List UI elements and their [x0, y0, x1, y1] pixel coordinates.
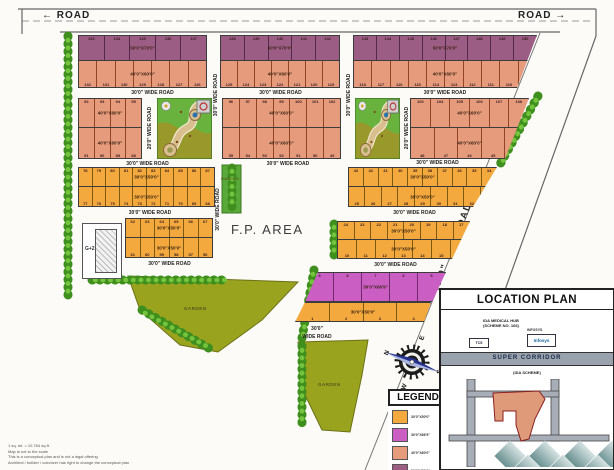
plot-row: 13213113012912812712640'0"X60'0": [78, 61, 207, 88]
plot-cell: 47: [435, 128, 459, 158]
plot-row: 13313413513613750'0"X70'0": [78, 35, 207, 61]
garden-label: GARDEN: [221, 177, 239, 181]
plot-cell: 3: [364, 303, 398, 321]
plot-cell: 94: [111, 99, 127, 127]
compass-e: E: [418, 334, 426, 341]
road-label: 30'0" WIDE ROAD: [380, 90, 510, 97]
plot-cell: 6: [390, 273, 418, 301]
arrow-left-icon: ←: [42, 10, 53, 21]
plot-cell: 91: [79, 128, 95, 158]
plot-cell: 20: [404, 222, 421, 239]
plot-cell: 80: [106, 168, 120, 186]
plot-number: 20: [404, 222, 420, 227]
plot-number: 129: [134, 82, 151, 87]
plot-cell: 85: [174, 168, 188, 186]
road-label: WIDE ROAD: [292, 334, 342, 341]
plot-cell: 119: [323, 61, 339, 87]
plot-number: 37: [438, 168, 452, 173]
plot-cell: 102: [324, 99, 340, 127]
plot-number: 29: [415, 201, 430, 206]
garden-label: GARDEN: [184, 306, 207, 311]
block-c: 14314414514614714814915050'0"X70'0"11811…: [353, 35, 537, 88]
plot-number: 18: [437, 222, 453, 227]
block-k: 9876530'0"X66'9": [305, 272, 446, 302]
plot-cell: 126: [189, 61, 206, 87]
plot-number: 57: [184, 252, 198, 257]
plot-number: 23: [355, 222, 371, 227]
plot-number: 136: [156, 36, 181, 41]
plot-number: 10: [338, 253, 356, 258]
plot-cell: 83: [147, 168, 161, 186]
top-road-label-right: ROAD →: [518, 10, 566, 21]
plot-number: 1: [296, 316, 329, 321]
g2-building-compound: G+2: [82, 223, 122, 279]
compass-n: N: [383, 349, 391, 356]
plot-cell: 128: [152, 61, 170, 87]
plot-cell: 26: [365, 187, 381, 206]
plot-cell: 111: [482, 61, 500, 87]
plot-cell: 71: [161, 187, 175, 206]
plot-number: 38: [423, 168, 437, 173]
plot-number: 55: [223, 153, 239, 158]
plot-number: 119: [323, 82, 339, 87]
plot-number: 145: [400, 36, 422, 41]
plot-number: 118: [354, 82, 371, 87]
plot-cell: 97: [240, 99, 257, 127]
plot-number: 28: [398, 201, 413, 206]
plot-cell: 134: [105, 36, 131, 60]
plot-number: 69: [188, 201, 201, 206]
plot-cell: 58: [170, 238, 185, 257]
plot-row: 9190898840'0"X60'0": [78, 128, 142, 159]
plot-row: 123430'0"X50'0": [295, 302, 431, 322]
plot-cell: 61: [126, 238, 141, 257]
plot-number: 128: [152, 82, 169, 87]
plot-number: 105: [450, 99, 469, 104]
plot-cell: 145: [400, 36, 423, 60]
plot-cell: 25: [349, 187, 365, 206]
plot-number: 82: [133, 168, 146, 173]
plot-cell: 70: [174, 187, 188, 206]
plot-cell: 122: [272, 61, 289, 87]
road-label: 30'0": [302, 326, 332, 333]
plot-number: 123: [255, 82, 271, 87]
plot-number: 142: [316, 36, 339, 41]
plot-cell: 72: [147, 187, 161, 206]
plot-cell: 146: [423, 36, 446, 60]
plot-number: 111: [482, 82, 499, 87]
plot-number: 8: [334, 273, 361, 278]
compass-rose: N E S W: [380, 330, 444, 394]
road-label: 20'0" WIDE ROAD: [147, 99, 154, 157]
plot-cell: 57: [184, 238, 199, 257]
plot-number: 30: [431, 201, 446, 206]
road-label: 30'0" WIDE ROAD: [122, 261, 217, 268]
road-label: 30'0" WIDE ROAD: [228, 90, 333, 97]
plot-number: 88: [126, 153, 141, 158]
medical-hub-label: IDA MEDICAL HUB (SCHEME NO. 166): [461, 318, 541, 328]
plot-cell: 27: [382, 187, 398, 206]
plot-number: 66: [184, 219, 198, 224]
block-b: 13813914014114250'0"X70'0"12512412312212…: [220, 35, 340, 88]
plot-number: 35: [467, 168, 481, 173]
road-label: 30'0" WIDE ROAD: [95, 161, 200, 168]
plot-number: 2: [330, 316, 363, 321]
plot-cell: 104: [431, 99, 451, 127]
disclaimer: 1 sq. mt. = 10.764 sq.ft. Map is not to …: [8, 443, 129, 465]
infosys-caption: INFOSYS: [527, 328, 542, 332]
block-g: 7879808182838485868730'0"X50'0"777675747…: [78, 167, 215, 207]
super-corridor-band: SUPER CORRIDOR: [441, 352, 613, 366]
plot-number: 48: [411, 153, 434, 158]
plot-number: 83: [147, 168, 160, 173]
plot-cell: 68: [201, 187, 214, 206]
plot-number: 97: [240, 99, 256, 104]
plot-number: 140: [269, 36, 292, 41]
arrow-right-icon: →: [555, 10, 566, 21]
plot-cell: 65: [170, 219, 185, 237]
plot-cell: 40: [393, 168, 408, 186]
plot-cell: 75: [106, 187, 120, 206]
plot-number: 104: [431, 99, 450, 104]
location-plan-roads: [441, 379, 613, 467]
plot-row: 9697989910010110240'0"X60'0": [222, 98, 341, 128]
plot-cell: 45: [482, 128, 506, 158]
plot-number: 31: [448, 201, 463, 206]
plot-cell: 2: [330, 303, 364, 321]
plot-cell: 62: [126, 219, 141, 237]
plot-number: 126: [189, 82, 206, 87]
plot-cell: 14: [413, 240, 432, 258]
plot-cell: 88: [126, 128, 141, 158]
plot-number: 135: [130, 36, 155, 41]
plot-cell: 51: [290, 128, 307, 158]
plot-number: 53: [257, 153, 273, 158]
plot-number: 137: [181, 36, 206, 41]
plot-cell: 115: [409, 61, 427, 87]
plot-number: 58: [170, 252, 184, 257]
plot-number: 112: [464, 82, 481, 87]
plot-number: 115: [409, 82, 426, 87]
plot-cell: 77: [79, 187, 93, 206]
plot-cell: 13: [395, 240, 414, 258]
legend-item-label: 40'0"X60'0": [411, 451, 430, 455]
plot-cell: 105: [450, 99, 470, 127]
plot-number: 95: [126, 99, 141, 104]
plot-number: 52: [274, 153, 290, 158]
plot-number: 47: [435, 153, 458, 158]
plot-row: 25262728293031323330'0"X50'0": [348, 187, 497, 207]
plot-cell: 121: [289, 61, 306, 87]
plot-cell: 4: [397, 303, 430, 321]
plot-number: 61: [126, 252, 140, 257]
plot-number: 99: [274, 99, 290, 104]
plot-number: 71: [161, 201, 174, 206]
plot-number: 131: [97, 82, 114, 87]
plot-number: 149: [491, 36, 513, 41]
plot-row: 242322212019181730'0"X50'0": [337, 221, 470, 240]
park-playground-1: [157, 98, 212, 159]
plot-number: 22: [371, 222, 387, 227]
road-label: 30'0" WIDE ROAD: [238, 161, 338, 168]
plot-cell: 23: [355, 222, 372, 239]
plot-cell: 22: [371, 222, 388, 239]
plot-cell: 99: [274, 99, 291, 127]
plot-cell: 28: [398, 187, 414, 206]
plot-number: 110: [500, 82, 517, 87]
legend-swatch: [392, 410, 408, 424]
plot-number: 132: [79, 82, 96, 87]
plot-number: 81: [120, 168, 133, 173]
plot-number: 64: [155, 219, 169, 224]
plot-number: 63: [141, 219, 155, 224]
plot-number: 62: [126, 219, 140, 224]
plot-number: 24: [338, 222, 354, 227]
plot-number: 96: [223, 99, 239, 104]
plot-number: 19: [421, 222, 437, 227]
plot-number: 87: [201, 168, 214, 173]
plot-number: 42: [364, 168, 378, 173]
plot-row: 10310410510610710840'0"X60'0": [410, 98, 529, 128]
plot-number: 80: [106, 168, 119, 173]
plot-number: 120: [306, 82, 322, 87]
plot-cell: 107: [490, 99, 510, 127]
plot-cell: 113: [445, 61, 463, 87]
plot-cell: 49: [324, 128, 340, 158]
plot-number: 70: [174, 201, 187, 206]
plot-cell: 18: [437, 222, 454, 239]
plot-cell: 130: [116, 61, 134, 87]
plot-number: 100: [290, 99, 306, 104]
road-label: 30'0" WIDE ROAD: [100, 210, 200, 217]
legend-item-label: 30'0"X50'0": [411, 415, 430, 419]
plot-number: 77: [79, 201, 92, 206]
g2-building: [95, 229, 117, 273]
plot-number: 51: [290, 153, 306, 158]
plot-number: 147: [446, 36, 468, 41]
plot-number: 150: [514, 36, 536, 41]
plot-number: 76: [93, 201, 106, 206]
plot-cell: 140: [269, 36, 293, 60]
plot-cell: 92: [79, 99, 95, 127]
plot-number: 27: [382, 201, 397, 206]
plot-row: 1011121314151630'0"X50'0": [337, 240, 470, 259]
block-d: 9293949540'0"X60'0"9190898840'0"X60'0": [78, 98, 142, 159]
site-shape: [493, 391, 545, 441]
plot-number: 86: [188, 168, 201, 173]
plot-cell: 82: [133, 168, 147, 186]
plot-cell: 78: [79, 168, 93, 186]
plot-cell: 43: [349, 168, 364, 186]
block-e: 9697989910010110240'0"X60'0"555453525150…: [222, 98, 341, 159]
plot-cell: 15: [432, 240, 451, 258]
plot-number: 60: [141, 252, 155, 257]
legend-swatch: [392, 446, 408, 460]
plot-number: 143: [354, 36, 376, 41]
plot-cell: 74: [120, 187, 134, 206]
plot-row: 13813914014114250'0"X70'0": [220, 35, 340, 61]
plot-cell: 11: [357, 240, 376, 258]
plot-cell: 79: [93, 168, 107, 186]
plot-cell: 31: [448, 187, 464, 206]
plot-number: 15: [432, 253, 450, 258]
plot-number: 72: [147, 201, 160, 206]
road-label: 20'0" WIDE ROAD: [404, 99, 411, 157]
plot-row: 12512412312212112011940'0"X60'0": [220, 61, 340, 88]
garden-label: GARDEN: [318, 382, 341, 387]
plot-row: 11811711611511411311211111010940'0"X60'0…: [353, 61, 537, 88]
plot-number: 7: [362, 273, 389, 278]
plot-number: 40: [393, 168, 407, 173]
plot-number: 139: [245, 36, 268, 41]
plot-cell: 114: [427, 61, 445, 87]
plot-cell: 86: [188, 168, 202, 186]
plot-cell: 133: [79, 36, 105, 60]
plot-number: 17: [454, 222, 470, 227]
plot-cell: 132: [79, 61, 97, 87]
plot-number: 14: [413, 253, 431, 258]
plot-cell: 50: [307, 128, 324, 158]
plot-cell: 55: [223, 128, 240, 158]
plot-cell: 98: [257, 99, 274, 127]
plot-number: 133: [79, 36, 104, 41]
plot-row: 62636465666730'0"X50'0": [125, 218, 213, 238]
plot-row: 7879808182838485868730'0"X50'0": [78, 167, 215, 187]
plot-cell: 103: [411, 99, 431, 127]
plot-cell: 24: [338, 222, 355, 239]
road-label: 30'0" WIDE ROAD: [385, 160, 490, 167]
legend-swatch: [392, 464, 408, 470]
plot-cell: 137: [181, 36, 206, 60]
plot-number: 107: [490, 99, 509, 104]
plot-row: 5554535251504940'0"X60'0": [222, 128, 341, 159]
plot-cell: 52: [274, 128, 291, 158]
plot-row: 7776757473727170696830'0"X50'0": [78, 187, 215, 207]
plot-cell: 147: [446, 36, 469, 60]
road-label: 30'0" WIDE ROAD: [100, 90, 205, 97]
plot-number: 43: [349, 168, 363, 173]
g2-label: G+2: [85, 246, 95, 252]
plot-number: 116: [391, 82, 408, 87]
plot-cell: 12: [376, 240, 395, 258]
plot-number: 94: [111, 99, 126, 104]
plot-number: 85: [174, 168, 187, 173]
plot-number: 45: [482, 153, 505, 158]
plot-cell: 95: [126, 99, 141, 127]
plot-row: 9876530'0"X66'9": [305, 272, 446, 302]
plot-number: 78: [79, 168, 92, 173]
plot-cell: 148: [468, 36, 491, 60]
plot-cell: 64: [155, 219, 170, 237]
plot-number: 65: [170, 219, 184, 224]
plot-number: 26: [365, 201, 380, 206]
plot-cell: 117: [372, 61, 390, 87]
plot-number: 98: [257, 99, 273, 104]
plot-number: 49: [324, 153, 340, 158]
plot-number: 5: [418, 273, 445, 278]
plot-cell: 21: [388, 222, 405, 239]
plot-cell: 73: [133, 187, 147, 206]
plot-number: 138: [221, 36, 244, 41]
plot-cell: 90: [95, 128, 111, 158]
plot-cell: 112: [464, 61, 482, 87]
plot-cell: 59: [155, 238, 170, 257]
road-label: 30'0" WIDE ROAD: [362, 210, 467, 217]
plot-cell: 87: [201, 168, 214, 186]
plot-number: 84: [161, 168, 174, 173]
plot-cell: 131: [97, 61, 115, 87]
plot-number: 50: [307, 153, 323, 158]
plot-number: 125: [221, 82, 237, 87]
plot-row: 61605958575630'0"X50'0": [125, 238, 213, 258]
plot-cell: 116: [391, 61, 409, 87]
fp-area-label: F.P. AREA: [231, 222, 304, 237]
plot-number: 102: [324, 99, 340, 104]
plot-number: 101: [307, 99, 323, 104]
plot-cell: 138: [221, 36, 245, 60]
plot-cell: 8: [334, 273, 362, 301]
block-a: 13313413513613750'0"X70'0"13213113012912…: [78, 35, 207, 88]
top-road-label-left: ← ROAD: [42, 10, 90, 21]
plot-number: 89: [111, 153, 126, 158]
plot-cell: 123: [255, 61, 272, 87]
plot-number: 127: [170, 82, 187, 87]
plot-number: 13: [395, 253, 413, 258]
plot-number: 148: [468, 36, 490, 41]
plot-number: 59: [155, 252, 169, 257]
plot-number: 75: [106, 201, 119, 206]
plot-number: 41: [379, 168, 393, 173]
plot-cell: 66: [184, 219, 199, 237]
plot-number: 12: [376, 253, 394, 258]
ida-scheme-label: (IDA SCHEME): [441, 370, 613, 375]
plot-cell: 149: [491, 36, 514, 60]
plot-number: 92: [79, 99, 94, 104]
plot-cell: 41: [379, 168, 394, 186]
plot-cell: 46: [458, 128, 482, 158]
plot-cell: 48: [411, 128, 435, 158]
plot-number: 106: [470, 99, 489, 104]
plot-number: 74: [120, 201, 133, 206]
plot-cell: 125: [221, 61, 238, 87]
plot-row: 9293949540'0"X60'0": [78, 98, 142, 128]
plot-number: 121: [289, 82, 305, 87]
plot-number: 93: [95, 99, 110, 104]
block-h: 4342414039383736353430'0"X50'0"252627282…: [348, 167, 497, 207]
plot-cell: 106: [470, 99, 490, 127]
plot-cell: 143: [354, 36, 377, 60]
plot-number: 114: [427, 82, 444, 87]
legend-item-label: 30'0"X66'9": [411, 433, 430, 437]
legend-swatch: [392, 428, 408, 442]
plot-number: 79: [93, 168, 106, 173]
plot-number: 134: [105, 36, 130, 41]
plot-number: 46: [458, 153, 481, 158]
plot-cell: 120: [306, 61, 323, 87]
plot-cell: 54: [240, 128, 257, 158]
plot-cell: 100: [290, 99, 307, 127]
plot-cell: 60: [141, 238, 156, 257]
plot-cell: 42: [364, 168, 379, 186]
plot-number: 11: [357, 253, 375, 258]
plot-cell: 29: [415, 187, 431, 206]
plot-number: 73: [133, 201, 146, 206]
plot-cell: 81: [120, 168, 134, 186]
plot-cell: 129: [134, 61, 152, 87]
plot-number: 67: [199, 219, 213, 224]
location-plan-title: LOCATION PLAN: [441, 290, 613, 310]
plot-number: 141: [292, 36, 315, 41]
